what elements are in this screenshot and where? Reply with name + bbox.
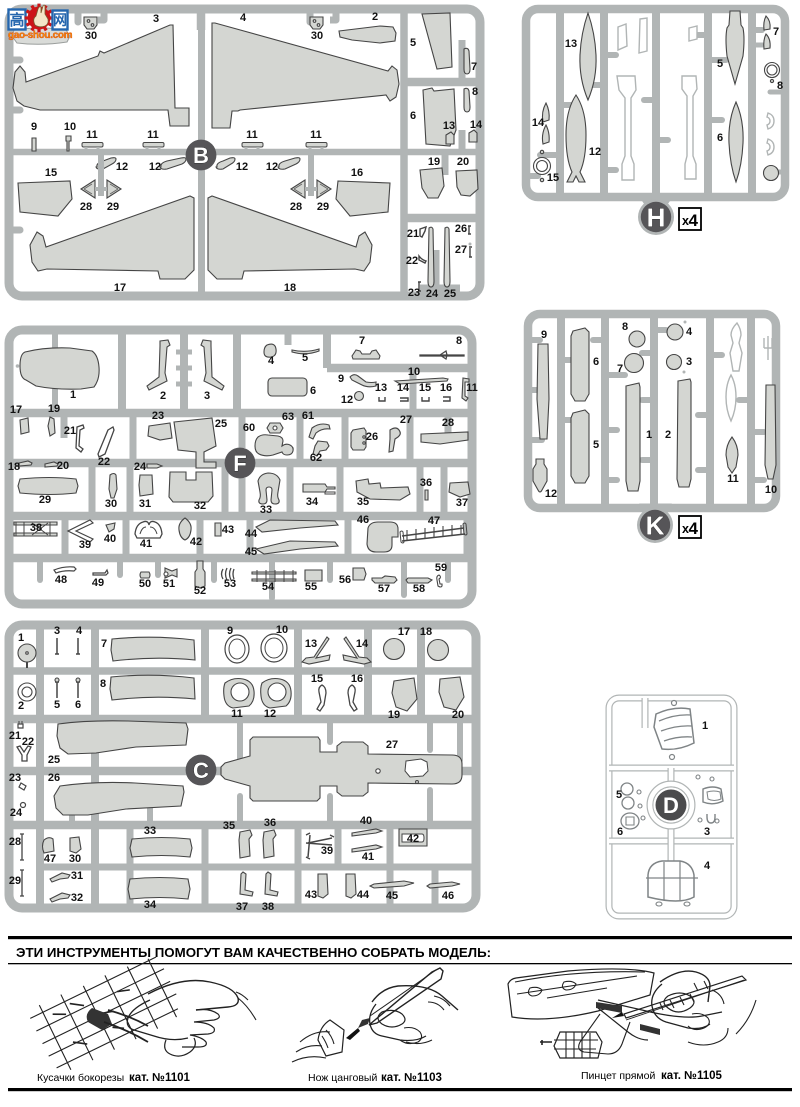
- svg-text:11: 11: [86, 129, 98, 141]
- svg-text:Нож цанговый: Нож цанговый: [308, 1072, 377, 1084]
- svg-text:27: 27: [400, 414, 412, 426]
- svg-text:52: 52: [194, 585, 206, 597]
- svg-text:37: 37: [456, 497, 468, 509]
- svg-text:22: 22: [406, 255, 418, 267]
- svg-text:кат. №1103: кат. №1103: [381, 1072, 442, 1084]
- svg-text:25: 25: [444, 288, 456, 300]
- svg-text:33: 33: [260, 504, 272, 516]
- svg-text:40: 40: [104, 533, 116, 545]
- svg-text:4: 4: [268, 355, 275, 367]
- svg-text:13: 13: [375, 382, 387, 394]
- svg-text:32: 32: [194, 500, 206, 512]
- svg-text:28: 28: [9, 836, 21, 848]
- svg-text:27: 27: [386, 739, 398, 751]
- svg-text:19: 19: [48, 403, 60, 415]
- svg-text:Кусачки бокорезы: Кусачки бокорезы: [37, 1072, 124, 1084]
- svg-text:11: 11: [727, 473, 739, 485]
- svg-text:13: 13: [305, 638, 317, 650]
- svg-text:12: 12: [149, 161, 161, 173]
- svg-text:57: 57: [378, 583, 390, 595]
- svg-text:28: 28: [80, 201, 92, 213]
- svg-text:3: 3: [704, 826, 710, 838]
- svg-text:5: 5: [54, 699, 60, 711]
- svg-text:5: 5: [410, 37, 416, 49]
- svg-text:35: 35: [223, 820, 235, 832]
- svg-text:23: 23: [152, 410, 164, 422]
- svg-text:12: 12: [266, 161, 278, 173]
- svg-text:кат. №1105: кат. №1105: [661, 1070, 723, 1082]
- svg-text:18: 18: [420, 626, 432, 638]
- svg-text:2: 2: [665, 429, 671, 441]
- svg-text:6: 6: [410, 110, 416, 122]
- svg-text:46: 46: [442, 890, 454, 902]
- svg-text:32: 32: [71, 892, 83, 904]
- svg-text:7: 7: [773, 26, 779, 38]
- svg-text:14: 14: [397, 382, 410, 394]
- svg-text:54: 54: [262, 581, 275, 593]
- svg-text:6: 6: [717, 132, 723, 144]
- svg-text:11: 11: [310, 129, 322, 141]
- svg-text:15: 15: [419, 382, 431, 394]
- svg-text:5: 5: [616, 789, 622, 801]
- svg-text:H: H: [647, 202, 666, 232]
- svg-text:29: 29: [317, 201, 329, 213]
- svg-text:17: 17: [398, 626, 410, 638]
- svg-text:29: 29: [9, 875, 21, 887]
- svg-text:5: 5: [302, 352, 308, 364]
- svg-text:4: 4: [689, 211, 699, 230]
- svg-text:58: 58: [413, 583, 425, 595]
- svg-text:34: 34: [306, 496, 319, 508]
- svg-text:4: 4: [686, 326, 693, 338]
- svg-text:40: 40: [360, 815, 372, 827]
- svg-text:9: 9: [338, 373, 344, 385]
- svg-text:22: 22: [98, 456, 110, 468]
- svg-text:50: 50: [139, 578, 151, 590]
- svg-text:39: 39: [79, 539, 91, 551]
- svg-text:8: 8: [777, 80, 783, 92]
- svg-text:41: 41: [362, 851, 374, 863]
- svg-text:7: 7: [471, 61, 477, 73]
- svg-text:19: 19: [388, 709, 400, 721]
- svg-text:29: 29: [107, 201, 119, 213]
- svg-text:10: 10: [276, 624, 288, 636]
- svg-text:14: 14: [356, 638, 369, 650]
- svg-text:15: 15: [45, 167, 57, 179]
- svg-text:29: 29: [39, 494, 51, 506]
- svg-text:16: 16: [351, 167, 363, 179]
- svg-text:20: 20: [57, 460, 69, 472]
- svg-text:11: 11: [147, 129, 159, 141]
- svg-text:15: 15: [547, 172, 559, 184]
- svg-text:23: 23: [9, 772, 21, 784]
- svg-text:24: 24: [426, 288, 439, 300]
- svg-text:4: 4: [76, 625, 83, 637]
- svg-text:11: 11: [231, 708, 243, 720]
- svg-text:8: 8: [622, 321, 628, 333]
- svg-text:8: 8: [456, 335, 462, 347]
- svg-text:16: 16: [351, 673, 363, 685]
- svg-text:21: 21: [64, 425, 76, 437]
- svg-text:25: 25: [215, 418, 227, 430]
- svg-text:C: C: [193, 758, 209, 783]
- svg-text:9: 9: [227, 625, 233, 637]
- svg-text:44: 44: [245, 528, 258, 540]
- svg-text:31: 31: [71, 870, 83, 882]
- svg-text:13: 13: [443, 120, 455, 132]
- svg-text:19: 19: [428, 156, 440, 168]
- svg-text:7: 7: [101, 638, 107, 650]
- svg-text:42: 42: [407, 833, 419, 845]
- svg-text:22: 22: [22, 736, 34, 748]
- svg-text:9: 9: [31, 121, 37, 133]
- svg-text:27: 27: [455, 244, 467, 256]
- svg-text:37: 37: [236, 901, 248, 913]
- svg-text:网: 网: [53, 12, 67, 28]
- svg-text:ЭТИ ИНСТРУМЕНТЫ ПОМОГУТ ВАМ КА: ЭТИ ИНСТРУМЕНТЫ ПОМОГУТ ВАМ КАЧЕСТВЕННО …: [16, 945, 491, 960]
- svg-text:20: 20: [452, 709, 464, 721]
- svg-text:4: 4: [240, 12, 247, 24]
- svg-text:15: 15: [311, 673, 323, 685]
- svg-text:38: 38: [30, 522, 42, 534]
- svg-text:38: 38: [262, 901, 274, 913]
- svg-text:1: 1: [702, 720, 708, 732]
- svg-text:24: 24: [10, 807, 23, 819]
- svg-text:49: 49: [92, 577, 104, 589]
- svg-text:33: 33: [144, 825, 156, 837]
- svg-text:10: 10: [408, 366, 420, 378]
- svg-text:36: 36: [420, 477, 432, 489]
- svg-text:43: 43: [222, 524, 234, 536]
- svg-text:3: 3: [153, 13, 159, 25]
- svg-text:59: 59: [435, 562, 447, 574]
- svg-text:47: 47: [428, 515, 440, 527]
- svg-text:17: 17: [114, 282, 126, 294]
- svg-text:11: 11: [466, 382, 478, 394]
- svg-text:30: 30: [69, 853, 81, 865]
- svg-text:2: 2: [372, 11, 378, 23]
- svg-text:1: 1: [646, 429, 652, 441]
- svg-text:кат. №1101: кат. №1101: [129, 1072, 191, 1084]
- svg-text:53: 53: [224, 578, 236, 590]
- svg-text:12: 12: [264, 708, 276, 720]
- svg-text:56: 56: [339, 574, 351, 586]
- svg-text:25: 25: [48, 754, 60, 766]
- svg-text:12: 12: [589, 146, 601, 158]
- svg-text:3: 3: [686, 356, 692, 368]
- svg-text:12: 12: [545, 488, 557, 500]
- svg-text:12: 12: [236, 161, 248, 173]
- svg-text:10: 10: [64, 121, 76, 133]
- svg-text:Пинцет прямой: Пинцет прямой: [581, 1070, 655, 1082]
- svg-text:8: 8: [472, 86, 478, 98]
- svg-text:42: 42: [190, 536, 202, 548]
- svg-text:20: 20: [457, 156, 469, 168]
- svg-text:26: 26: [455, 223, 467, 235]
- svg-text:D: D: [663, 793, 679, 818]
- svg-text:9: 9: [541, 329, 547, 341]
- svg-text:7: 7: [359, 335, 365, 347]
- svg-text:6: 6: [310, 385, 316, 397]
- svg-text:8: 8: [100, 678, 106, 690]
- svg-text:51: 51: [163, 578, 175, 590]
- svg-text:46: 46: [357, 514, 369, 526]
- svg-text:26: 26: [366, 431, 378, 443]
- svg-text:36: 36: [264, 817, 276, 829]
- svg-text:34: 34: [144, 899, 157, 911]
- svg-text:F: F: [233, 451, 246, 476]
- svg-text:14: 14: [470, 119, 483, 131]
- svg-text:14: 14: [532, 117, 545, 129]
- svg-text:55: 55: [305, 581, 317, 593]
- svg-text:K: K: [646, 510, 665, 540]
- svg-text:5: 5: [593, 439, 599, 451]
- svg-text:31: 31: [139, 498, 151, 510]
- svg-text:30: 30: [85, 30, 97, 42]
- svg-text:高: 高: [9, 11, 24, 29]
- svg-text:4: 4: [704, 860, 711, 872]
- svg-text:2: 2: [160, 390, 166, 402]
- svg-text:24: 24: [134, 461, 147, 473]
- svg-text:6: 6: [75, 699, 81, 711]
- svg-text:28: 28: [290, 201, 302, 213]
- svg-text:47: 47: [44, 853, 56, 865]
- svg-text:30: 30: [311, 30, 323, 42]
- svg-text:1: 1: [70, 389, 76, 401]
- svg-text:3: 3: [54, 625, 60, 637]
- svg-text:45: 45: [386, 890, 398, 902]
- svg-text:30: 30: [105, 498, 117, 510]
- svg-text:12: 12: [116, 161, 128, 173]
- svg-text:63: 63: [282, 411, 294, 423]
- svg-text:16: 16: [440, 382, 452, 394]
- svg-text:41: 41: [140, 538, 152, 550]
- svg-text:21: 21: [9, 730, 21, 742]
- svg-text:26: 26: [48, 772, 60, 784]
- svg-text:48: 48: [55, 574, 67, 586]
- svg-text:B: B: [193, 143, 209, 168]
- svg-text:2: 2: [18, 700, 24, 712]
- svg-text:1: 1: [18, 632, 24, 644]
- svg-text:5: 5: [717, 58, 723, 70]
- svg-text:12: 12: [341, 394, 353, 406]
- svg-text:18: 18: [8, 461, 20, 473]
- svg-text:gao-shou.com: gao-shou.com: [8, 30, 73, 41]
- svg-text:4: 4: [689, 519, 699, 538]
- svg-text:44: 44: [357, 889, 370, 901]
- svg-text:18: 18: [284, 282, 296, 294]
- svg-text:62: 62: [310, 452, 322, 464]
- svg-text:60: 60: [243, 422, 255, 434]
- svg-text:6: 6: [593, 356, 599, 368]
- svg-text:28: 28: [442, 417, 454, 429]
- svg-text:17: 17: [10, 404, 22, 416]
- svg-text:35: 35: [357, 496, 369, 508]
- svg-text:21: 21: [407, 228, 419, 240]
- svg-text:6: 6: [617, 826, 623, 838]
- svg-text:13: 13: [565, 38, 577, 50]
- svg-text:61: 61: [302, 410, 314, 422]
- svg-text:45: 45: [245, 546, 257, 558]
- svg-text:11: 11: [246, 129, 258, 141]
- svg-text:7: 7: [617, 363, 623, 375]
- svg-text:39: 39: [321, 845, 333, 857]
- svg-text:23: 23: [408, 287, 420, 299]
- svg-text:10: 10: [765, 484, 777, 496]
- svg-text:3: 3: [204, 390, 210, 402]
- svg-text:43: 43: [305, 889, 317, 901]
